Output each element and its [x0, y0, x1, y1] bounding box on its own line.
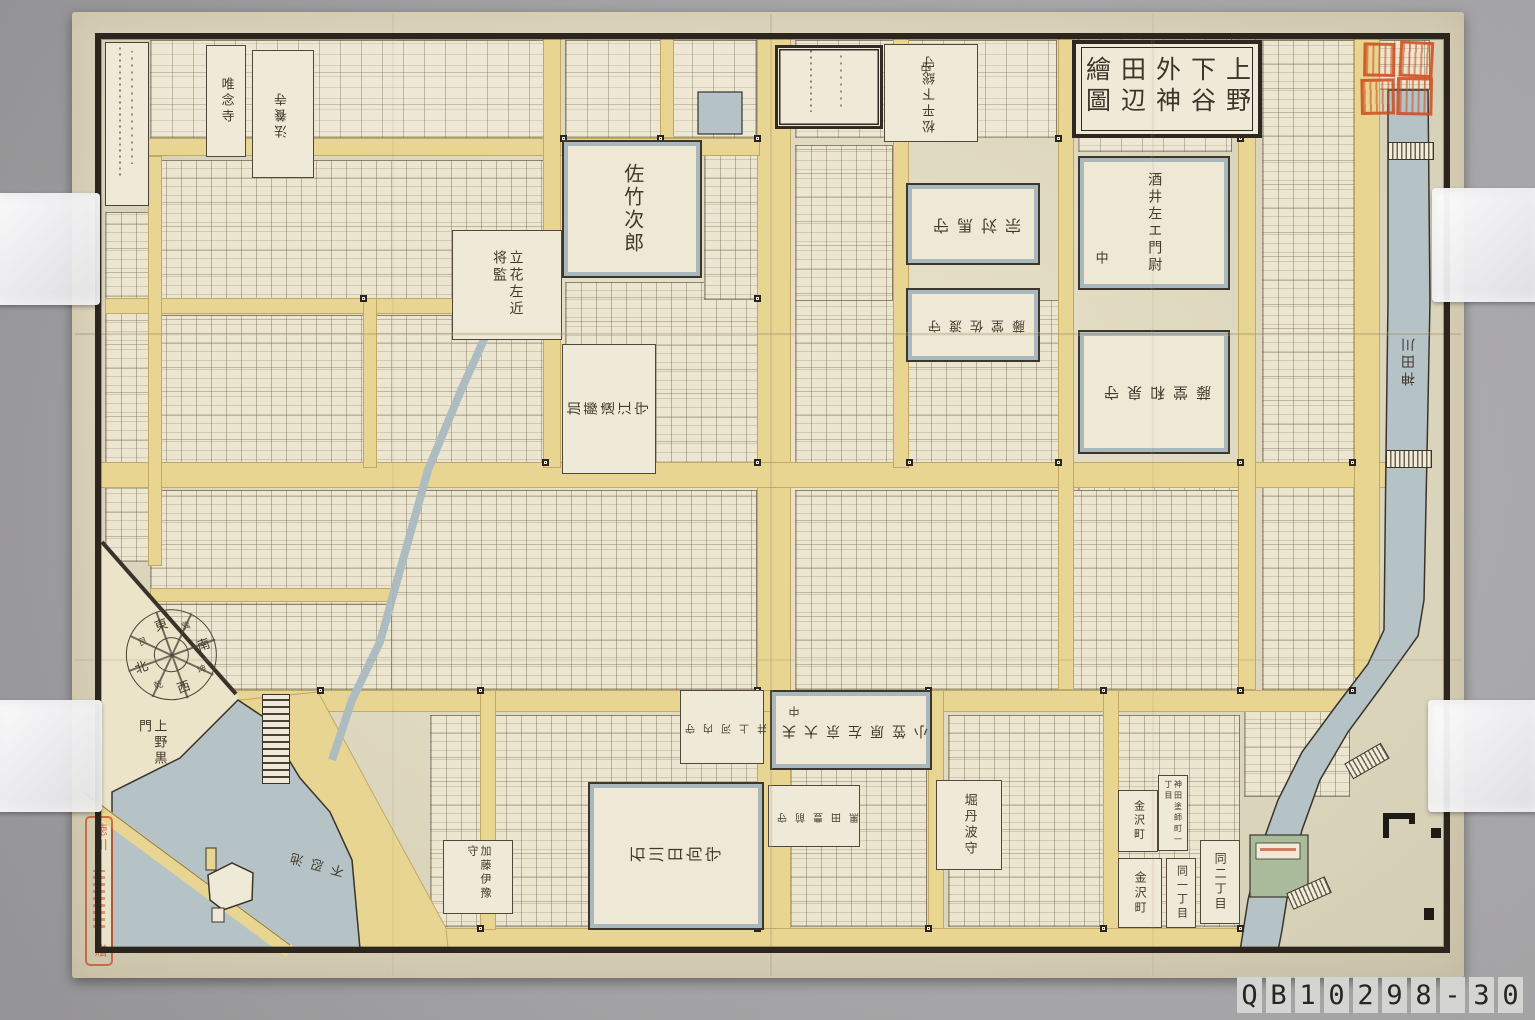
- map-label: 井上河内守: [680, 690, 764, 764]
- map-title: 上野下谷外神田辺繪圖: [1080, 56, 1255, 122]
- catalog-char-tile: 0: [1324, 977, 1349, 1013]
- catalog-char-tile: -: [1440, 977, 1465, 1013]
- map-label: 加藤伊豫守: [443, 840, 513, 914]
- map-label-text: 小笠原左京大夫: [774, 722, 928, 739]
- title-cartouche: 上野下谷外神田辺繪圖: [1072, 40, 1262, 138]
- gate-marker: [1100, 925, 1107, 932]
- gate-post: [1424, 908, 1434, 920]
- gate-marker: [317, 687, 324, 694]
- gate-marker: [1349, 687, 1356, 694]
- gate-marker: [477, 925, 484, 932]
- donor-seal-text-top: 徳川: [91, 823, 106, 853]
- gate-marker: [360, 295, 367, 302]
- library-seal: [1360, 40, 1433, 115]
- gate-marker: [754, 295, 761, 302]
- map-label: 神田川: [1396, 285, 1422, 435]
- sujikai-gate: [1386, 816, 1412, 838]
- map-label: 佐竹次郎: [562, 140, 702, 278]
- map-label-text: 黒田豊前守: [769, 810, 859, 822]
- map-label-text: 不忍池: [282, 847, 347, 878]
- map-label-text: 堀丹波守: [961, 793, 976, 857]
- map-label-text: 同二丁目: [1213, 852, 1227, 912]
- map-label-text: 中: [921, 61, 934, 73]
- map-label-text: 中: [1092, 251, 1107, 267]
- gate-marker: [906, 459, 913, 466]
- map-label-text: 酒井左エ門尉: [1146, 172, 1163, 274]
- map-label-text: 立花左近将監: [490, 250, 523, 320]
- gate-post: [1431, 828, 1441, 838]
- gate-marker: [1055, 459, 1062, 466]
- gate-marker: [1237, 925, 1244, 932]
- map-label-text: 藤堂佐渡守: [920, 317, 1025, 332]
- island-bridge: [206, 848, 216, 870]
- map-label: 金沢町: [1118, 790, 1158, 852]
- photo-of-map: 東南西北巽坤乾艮 佐竹次郎宗対馬守藤堂佐渡守酒井左エ門尉中藤堂和泉守立花左近将監…: [0, 0, 1535, 1020]
- holding-tab: [0, 700, 102, 812]
- map-label-text: 宗対馬守: [925, 215, 1021, 234]
- donor-seal: 徳川 贈: [85, 816, 113, 966]
- gate-marker: [542, 459, 549, 466]
- shamisenbori-pond: [698, 92, 742, 134]
- bank-label-marks: [1260, 848, 1296, 851]
- map-label: 金沢町: [1118, 858, 1162, 928]
- holding-tab: [1432, 188, 1535, 302]
- map-label-text: 金沢町: [1132, 800, 1145, 842]
- map-label: 同二丁目: [1200, 840, 1240, 924]
- catalog-char-tile: 3: [1469, 977, 1494, 1013]
- catalog-char-tile: 0: [1498, 977, 1523, 1013]
- catalog-label: QB10298-30: [1237, 977, 1523, 1013]
- map-label-text: 藤堂和泉守: [1096, 383, 1211, 401]
- map-label-text: 唯念寺: [218, 77, 233, 125]
- map-label: 藤堂和泉守: [1078, 330, 1230, 454]
- title-cartouche-inner: 上野下谷外神田辺繪圖: [1081, 47, 1253, 131]
- gate-marker: [477, 687, 484, 694]
- donor-seal-text-bottom: 贈: [91, 944, 106, 959]
- bridge: [1386, 450, 1432, 468]
- map-label: 神田塗師町一丁目: [1158, 775, 1188, 851]
- map-label: 不忍池: [282, 850, 346, 876]
- map-label: 同一丁目: [1166, 858, 1196, 928]
- map-label: 堀丹波守: [936, 780, 1002, 870]
- catalog-char-tile: Q: [1237, 977, 1262, 1013]
- island-pier: [212, 908, 224, 922]
- map-label: 藤堂佐渡守: [906, 288, 1040, 362]
- map-label-text: 神田川: [1401, 335, 1418, 386]
- catalog-char-tile: 8: [1411, 977, 1436, 1013]
- map-label: 上野黒門: [128, 716, 174, 782]
- map-label: 唯念寺: [206, 45, 246, 157]
- kanda-river: [1240, 90, 1430, 951]
- map-label-text: 上野黒門: [136, 719, 167, 779]
- gate-marker: [925, 925, 932, 932]
- gate-marker: [1237, 687, 1244, 694]
- margin-note-strip: [105, 42, 149, 206]
- gate-marker: [1349, 459, 1356, 466]
- map-label-text: 加藤伊豫守: [465, 845, 491, 909]
- catalog-char-tile: B: [1266, 977, 1291, 1013]
- map-label: 立花左近将監: [452, 230, 562, 340]
- gate-marker: [754, 459, 761, 466]
- map-label-text: 加藤遠江守: [566, 401, 651, 418]
- map-label: 加藤遠江守: [562, 344, 656, 474]
- bridge: [1388, 142, 1434, 160]
- map-label-text: 金沢町: [1133, 871, 1147, 916]
- map-label-text: 井上河内守: [677, 721, 767, 733]
- map-label-text: 法養寺: [275, 90, 290, 138]
- map-label: 石川日向守: [588, 782, 764, 930]
- map-label-text: 同一丁目: [1175, 865, 1188, 921]
- map-label: 黒田豊前守: [768, 785, 860, 847]
- map-label: 中: [918, 56, 936, 78]
- legend-box: [775, 45, 883, 129]
- donor-seal-marks: [93, 870, 105, 928]
- gate-marker: [754, 135, 761, 142]
- map-label-text: 神田塗師町一丁目: [1164, 780, 1183, 846]
- gate-marker: [1100, 687, 1107, 694]
- map-label: 中: [786, 700, 804, 722]
- holding-tab: [0, 193, 100, 305]
- gate-marker: [1055, 135, 1062, 142]
- catalog-char-tile: 9: [1382, 977, 1407, 1013]
- catalog-char-tile: 2: [1353, 977, 1378, 1013]
- map-label: 宗対馬守: [906, 183, 1040, 265]
- map-label-text: 石川日向守: [629, 847, 724, 866]
- map-label-text: 中: [789, 705, 802, 717]
- map-label-text: 佐竹次郎: [620, 163, 644, 255]
- map-label: 中: [1090, 246, 1110, 272]
- gate-marker: [1237, 459, 1244, 466]
- holding-tab: [1428, 700, 1535, 812]
- catalog-char-tile: 1: [1295, 977, 1320, 1013]
- map-label: 法養寺: [252, 50, 314, 178]
- kuromon-steps: [262, 694, 290, 784]
